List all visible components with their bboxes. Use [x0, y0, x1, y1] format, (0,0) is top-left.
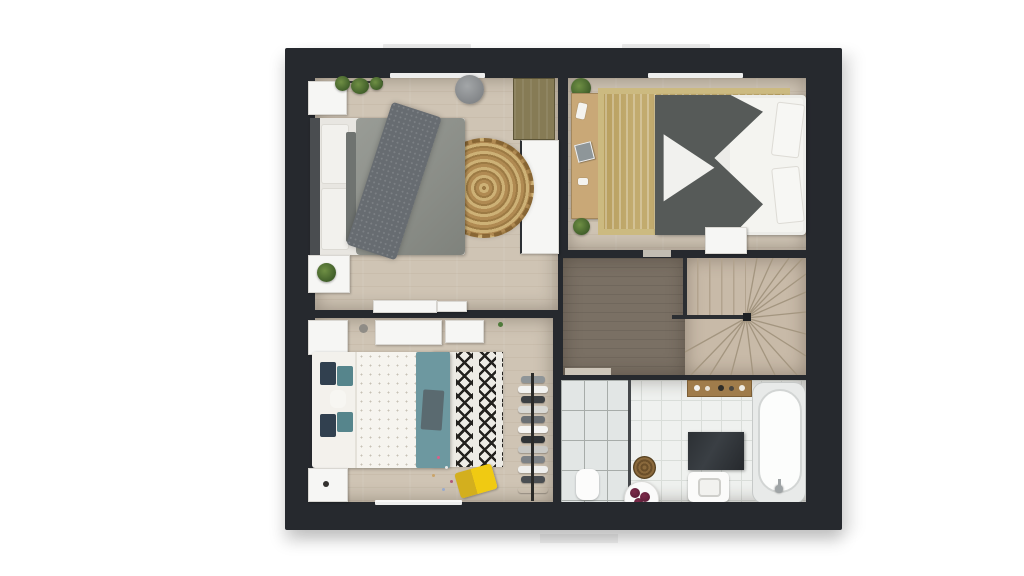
headboard	[310, 118, 320, 255]
gray-pouf	[455, 75, 484, 104]
hanging-plant-icon	[370, 77, 383, 90]
pillow-white	[330, 390, 346, 408]
confetti	[432, 474, 435, 477]
wall-cabinet	[445, 320, 484, 343]
hanging-plant-icon	[351, 78, 369, 94]
pillow	[321, 188, 349, 250]
ground-shadow-tab	[540, 534, 618, 543]
room-landing-hallway	[563, 258, 685, 375]
newel-post	[743, 313, 751, 321]
clothes-rack	[517, 373, 549, 501]
bed-bottom-left	[312, 352, 450, 468]
confetti	[437, 456, 440, 459]
shower-mat	[576, 469, 599, 500]
door-threshold-bathroom	[565, 368, 611, 375]
confetti	[442, 488, 445, 491]
hanging-plant-icon	[335, 76, 350, 91]
towel-roll	[630, 488, 640, 498]
white-dotted-duvet	[355, 352, 418, 468]
confetti	[445, 466, 448, 469]
door-threshold-bedroom	[643, 250, 671, 257]
toilet	[688, 472, 729, 502]
window-top-right-room	[648, 73, 743, 78]
nightstand-top	[308, 320, 348, 355]
potted-plant-icon	[573, 218, 590, 235]
bathtub	[752, 382, 806, 502]
tub-faucet-icon	[775, 485, 783, 493]
vanity-counter	[688, 432, 744, 470]
sideboard	[373, 300, 437, 313]
sideboard-small	[437, 301, 467, 312]
floor-plan	[285, 48, 842, 530]
bed-top-right	[655, 95, 806, 235]
pillow	[771, 166, 805, 225]
banister-vertical	[683, 258, 687, 319]
rack-rod	[531, 373, 534, 501]
tub-spout	[778, 479, 781, 486]
towel-roll	[634, 498, 643, 502]
round-basket-icon	[633, 456, 656, 479]
small-white-table	[705, 227, 747, 254]
window-bottom-room	[375, 500, 462, 505]
small-plant-icon	[498, 322, 503, 327]
pillow-teal	[337, 366, 353, 386]
gray-blanket	[421, 389, 445, 430]
pillow	[321, 124, 349, 184]
pillow-teal	[337, 412, 353, 432]
wood-wardrobe	[513, 78, 555, 140]
pillow-navy	[320, 362, 336, 385]
potted-plant-icon	[317, 263, 336, 282]
bed-top-left	[310, 118, 465, 255]
decor-dark	[323, 481, 329, 487]
towel-side-table	[624, 481, 659, 502]
confetti	[450, 480, 453, 483]
wall-shelf	[687, 380, 752, 397]
wall-cabinet	[375, 320, 442, 345]
desk-decor	[578, 178, 588, 185]
banister-horizontal	[672, 315, 747, 319]
decor-gray	[359, 324, 368, 333]
room-bathroom	[561, 380, 806, 502]
pillow-navy	[320, 414, 336, 437]
